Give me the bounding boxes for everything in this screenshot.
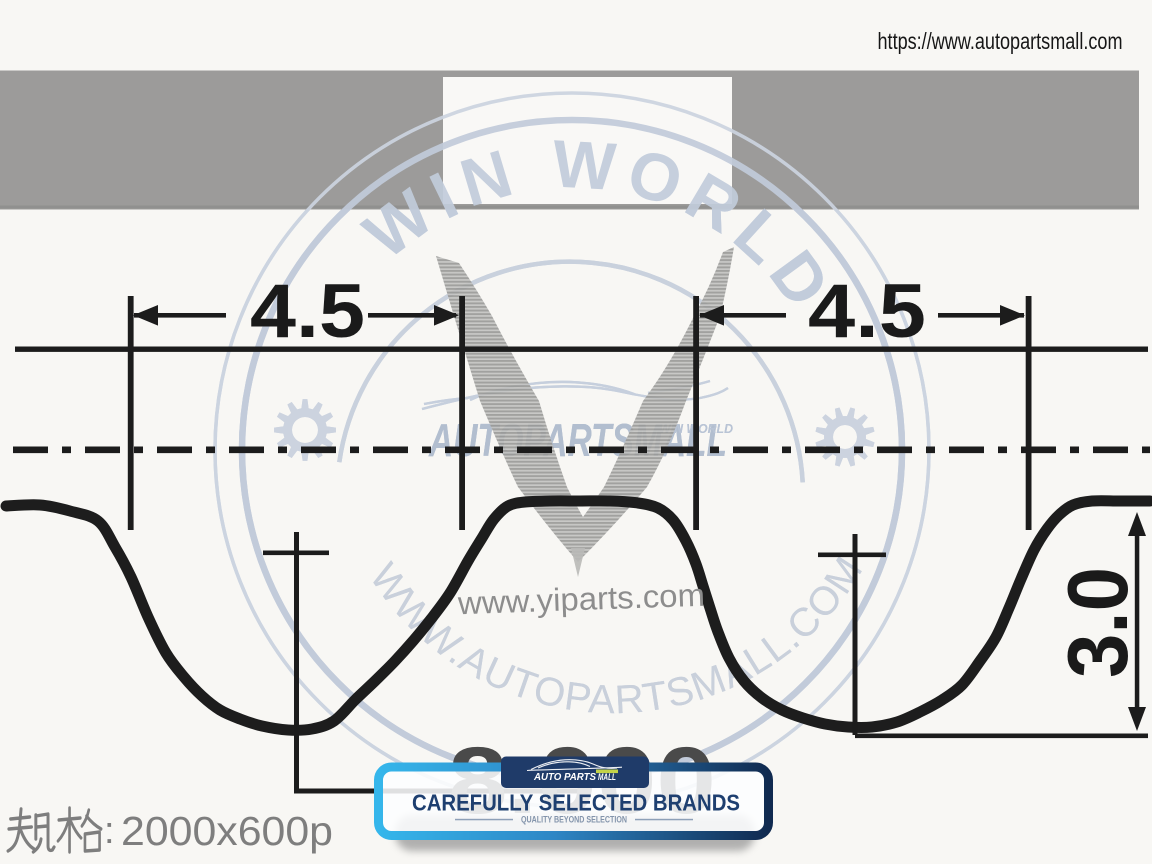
svg-text:MALL: MALL bbox=[598, 772, 616, 782]
svg-text::: : bbox=[104, 810, 115, 852]
svg-text:QUALITY BEYOND SELECTION: QUALITY BEYOND SELECTION bbox=[521, 815, 627, 826]
svg-text:CAREFULLY SELECTED BRANDS: CAREFULLY SELECTED BRANDS bbox=[412, 790, 740, 816]
svg-text:AUTO PARTS: AUTO PARTS bbox=[533, 771, 596, 783]
svg-text:4.5: 4.5 bbox=[250, 269, 365, 354]
svg-text:3.0: 3.0 bbox=[1051, 567, 1146, 678]
svg-text:https://www.autopartsmall.com: https://www.autopartsmall.com bbox=[878, 28, 1123, 54]
svg-text:2000x600p: 2000x600p bbox=[121, 808, 333, 854]
svg-text:4.5: 4.5 bbox=[808, 269, 926, 354]
